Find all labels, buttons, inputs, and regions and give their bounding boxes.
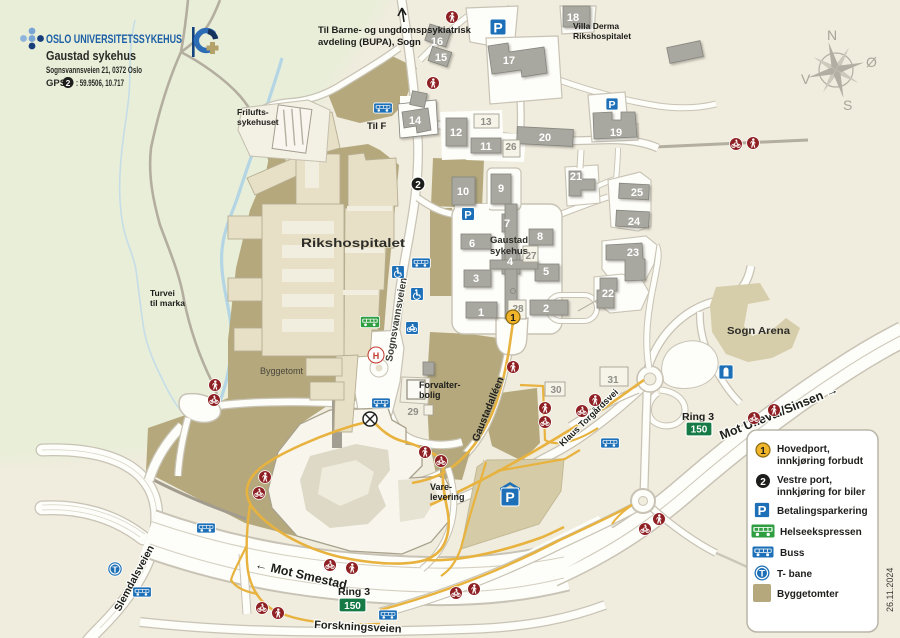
svg-text:Rikshospitalet: Rikshospitalet [573,31,631,41]
svg-text:Forvalter-: Forvalter- [419,380,461,390]
svg-text:Rikshospitalet: Rikshospitalet [301,236,405,250]
svg-text:P: P [505,489,514,505]
svg-text:14: 14 [409,115,422,127]
svg-text:10: 10 [457,186,469,198]
svg-text:19: 19 [610,127,622,139]
svg-text:avdeling (BUPA), Sogn: avdeling (BUPA), Sogn [318,37,421,48]
svg-text:Byggetomter: Byggetomter [777,589,839,600]
svg-text:N: N [827,27,837,43]
svg-text:Sogn Arena: Sogn Arena [727,325,790,337]
svg-text:Vestre port,: Vestre port, [777,475,832,486]
svg-text:27: 27 [525,251,537,262]
svg-text:150: 150 [344,601,361,612]
svg-text:20: 20 [539,132,551,144]
svg-text:4: 4 [507,256,514,268]
svg-text:24: 24 [628,216,641,228]
svg-text:2: 2 [66,78,71,88]
svg-text:S: S [843,97,852,113]
svg-text:7: 7 [504,218,510,230]
svg-text:31: 31 [607,375,619,386]
svg-text:2: 2 [415,180,421,191]
svg-text:29: 29 [407,407,419,418]
svg-text:Turvei: Turvei [150,288,175,298]
svg-text:2: 2 [760,477,766,488]
svg-text:Ring 3: Ring 3 [682,411,714,423]
svg-text:1: 1 [478,307,484,319]
svg-text:Gaustad: Gaustad [490,235,528,246]
svg-text:11: 11 [480,141,492,153]
svg-text:23: 23 [627,247,639,259]
svg-text:150: 150 [691,425,708,436]
svg-text:V: V [801,71,811,87]
svg-text:30: 30 [550,385,562,396]
svg-text:innkjøring forbudt: innkjøring forbudt [777,456,864,467]
svg-text:Villa Derma: Villa Derma [573,21,619,31]
svg-text:Til F: Til F [367,121,387,132]
svg-text:Byggetomt: Byggetomt [260,366,304,376]
svg-text:Til Barne- og ungdomspsykiatri: Til Barne- og ungdomspsykiatrisk [318,25,472,36]
svg-text:1: 1 [760,446,766,457]
svg-text:13: 13 [480,117,492,128]
svg-text:26: 26 [505,142,517,153]
svg-text:16: 16 [431,36,443,48]
svg-text:Helseekspressen: Helseekspressen [780,527,862,538]
svg-text:bolig: bolig [419,390,441,400]
svg-text:til marka: til marka [150,298,185,308]
svg-text:Gaustad sykehus: Gaustad sykehus [46,48,136,63]
svg-text:6: 6 [469,238,475,250]
svg-text:18: 18 [567,12,579,24]
svg-text:Ring 3: Ring 3 [338,586,370,598]
svg-text:26.11.2024: 26.11.2024 [885,568,895,612]
svg-text:22: 22 [602,288,614,300]
svg-text:: 59.9506, 10.717: : 59.9506, 10.717 [76,78,124,89]
svg-text:5: 5 [543,266,549,278]
svg-text:H: H [373,351,380,361]
svg-text:Ø: Ø [866,54,877,70]
svg-text:25: 25 [631,187,643,199]
svg-text:8: 8 [537,231,543,243]
svg-text:Frilufts-: Frilufts- [237,107,269,117]
svg-text:innkjøring for biler: innkjøring for biler [777,487,865,498]
svg-text:2: 2 [543,303,549,315]
svg-text:Buss: Buss [780,548,805,559]
svg-text:OSLO UNIVERSITETSSYKEHUS: OSLO UNIVERSITETSSYKEHUS [46,32,182,46]
svg-text:levering: levering [430,492,465,502]
svg-text:3: 3 [473,273,479,285]
svg-text:Betalingsparkering: Betalingsparkering [777,506,868,517]
svg-text:Hovedport,: Hovedport, [777,444,830,455]
svg-text:17: 17 [503,55,515,67]
svg-text:Sognsvannsveien 21, 0372 Oslo: Sognsvannsveien 21, 0372 Oslo [46,65,142,76]
svg-text:15: 15 [435,52,447,64]
svg-text:Vare-: Vare- [430,482,452,492]
svg-text:12: 12 [450,127,462,139]
svg-text:T- bane: T- bane [777,569,812,580]
svg-text:21: 21 [570,171,582,183]
svg-text:9: 9 [498,183,504,195]
svg-text:sykehuset: sykehuset [237,117,279,127]
svg-text:1: 1 [510,313,516,324]
